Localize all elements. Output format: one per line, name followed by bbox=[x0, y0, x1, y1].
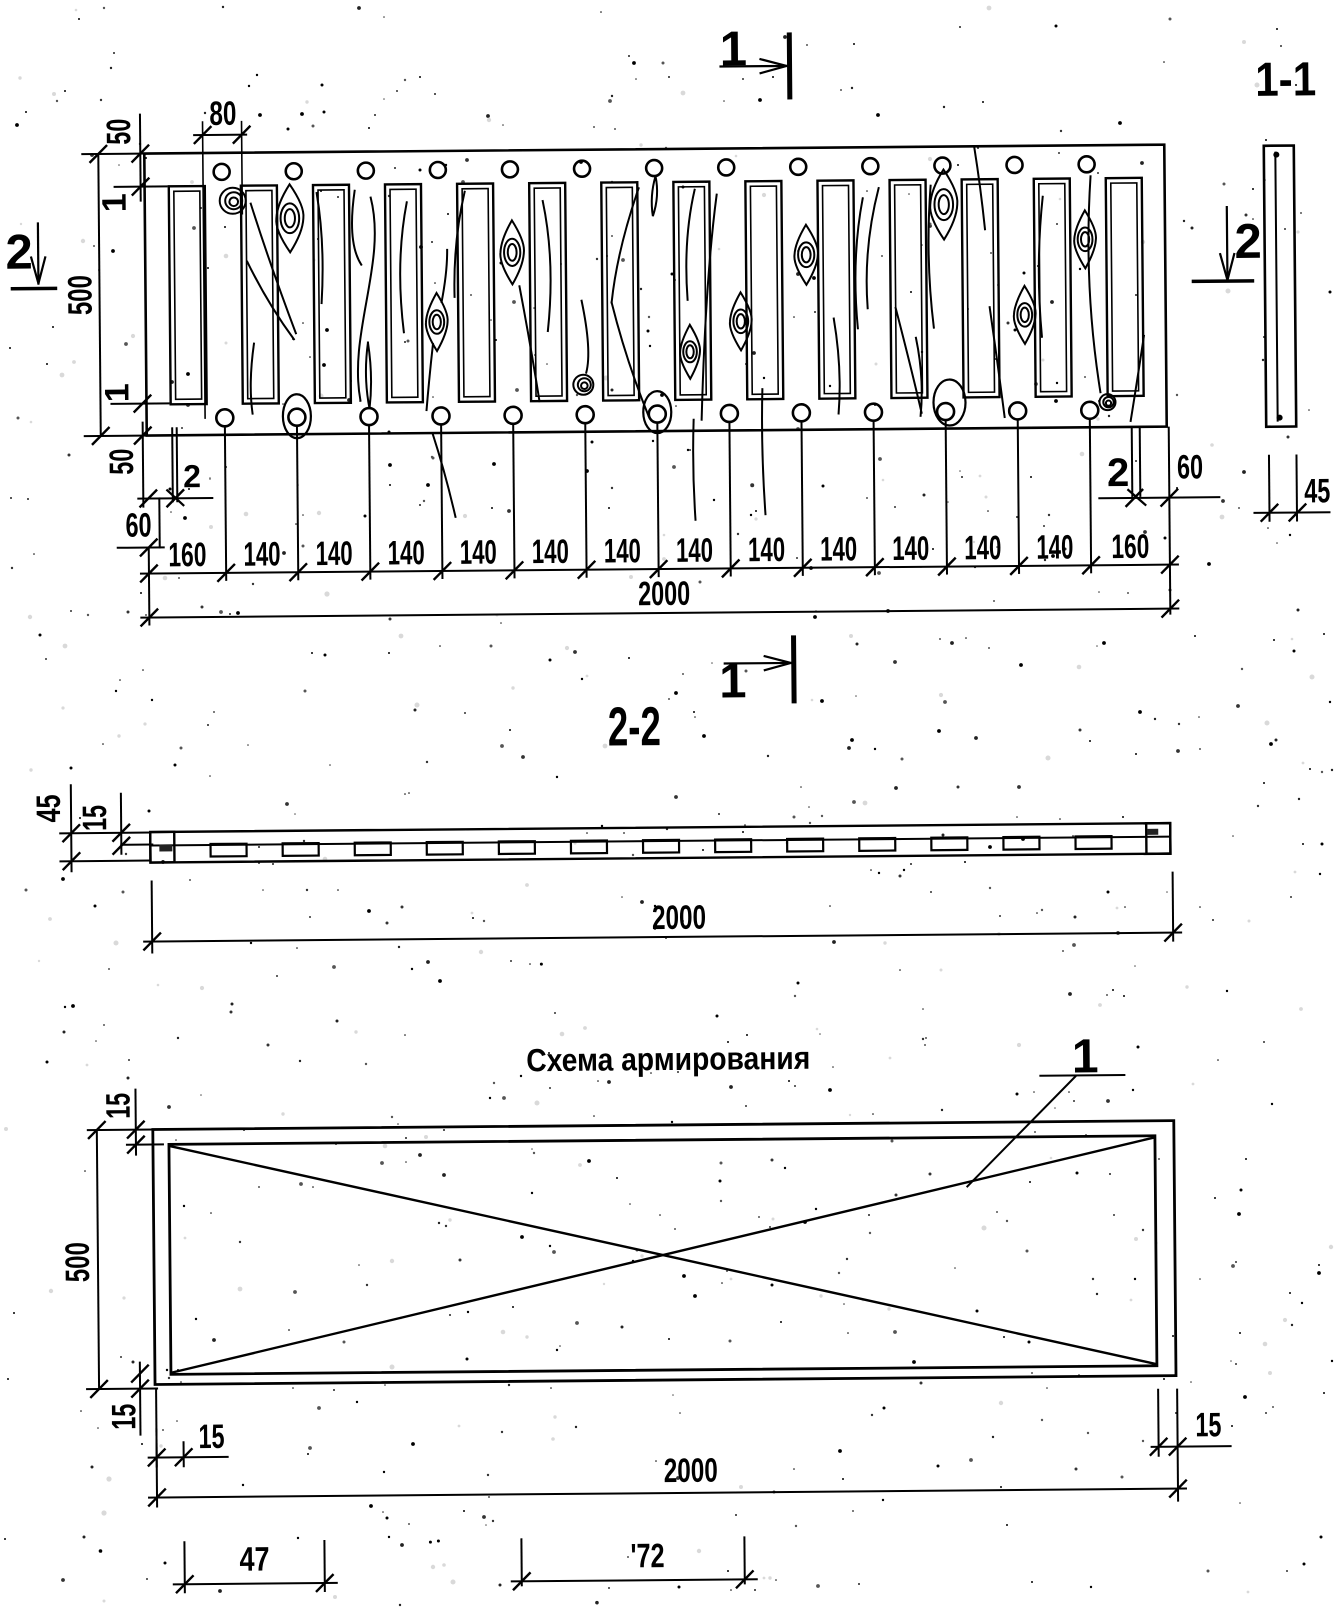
svg-text:140: 140 bbox=[892, 530, 929, 568]
svg-text:15: 15 bbox=[1195, 1406, 1221, 1444]
svg-text:1: 1 bbox=[720, 22, 748, 76]
svg-text:140: 140 bbox=[388, 534, 425, 572]
svg-text:140: 140 bbox=[748, 531, 785, 569]
svg-text:2000: 2000 bbox=[638, 575, 690, 613]
svg-text:2-2: 2-2 bbox=[608, 695, 662, 757]
svg-text:80: 80 bbox=[209, 95, 236, 133]
svg-text:60: 60 bbox=[125, 507, 151, 545]
svg-text:45: 45 bbox=[30, 794, 68, 822]
svg-text:140: 140 bbox=[243, 535, 280, 573]
svg-text:160: 160 bbox=[168, 536, 206, 574]
svg-text:2: 2 bbox=[5, 226, 33, 280]
svg-text:50: 50 bbox=[103, 449, 141, 475]
svg-text:2: 2 bbox=[1107, 451, 1130, 495]
svg-text:140: 140 bbox=[604, 532, 641, 570]
svg-text:140: 140 bbox=[964, 529, 1001, 567]
svg-text:15: 15 bbox=[99, 1093, 137, 1119]
svg-text:140: 140 bbox=[315, 535, 352, 573]
svg-text:1: 1 bbox=[719, 654, 747, 708]
svg-text:1-1: 1-1 bbox=[1255, 53, 1316, 107]
svg-text:140: 140 bbox=[532, 533, 569, 571]
svg-text:15: 15 bbox=[76, 805, 114, 831]
svg-text:500: 500 bbox=[59, 1242, 97, 1282]
svg-text:140: 140 bbox=[460, 533, 497, 571]
svg-text:1: 1 bbox=[98, 383, 136, 402]
svg-text:60: 60 bbox=[1177, 448, 1203, 486]
svg-text:140: 140 bbox=[1036, 528, 1073, 566]
svg-text:1: 1 bbox=[96, 193, 134, 212]
svg-text:140: 140 bbox=[820, 530, 857, 568]
svg-text:47: 47 bbox=[239, 1541, 269, 1579]
svg-text:2: 2 bbox=[1234, 215, 1262, 269]
svg-text:15: 15 bbox=[105, 1404, 143, 1430]
svg-text:Схема армирования: Схема армирования bbox=[526, 1040, 810, 1078]
svg-text:2: 2 bbox=[183, 458, 201, 494]
svg-text:2000: 2000 bbox=[652, 899, 706, 937]
svg-text:140: 140 bbox=[676, 532, 713, 570]
svg-text:'72: '72 bbox=[630, 1537, 664, 1575]
svg-text:15: 15 bbox=[198, 1418, 224, 1456]
svg-text:50: 50 bbox=[100, 119, 138, 145]
svg-text:160: 160 bbox=[1111, 528, 1149, 566]
svg-text:2000: 2000 bbox=[664, 1452, 718, 1490]
svg-text:1: 1 bbox=[1072, 1030, 1099, 1083]
svg-text:500: 500 bbox=[61, 275, 99, 315]
svg-text:45: 45 bbox=[1304, 472, 1330, 510]
